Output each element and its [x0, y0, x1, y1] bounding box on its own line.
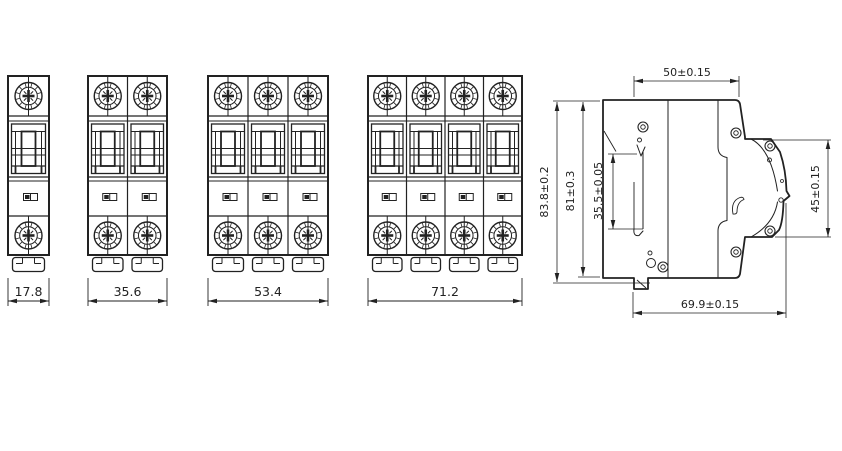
pole	[92, 77, 125, 272]
dim-label-height-body: 81±0.3	[564, 171, 577, 212]
status-indicator	[263, 194, 277, 201]
din-clip	[93, 258, 124, 272]
toggle-switch	[487, 124, 519, 174]
pole	[372, 77, 404, 272]
width-dimension: 17.8	[8, 278, 49, 306]
pole	[292, 77, 325, 272]
toggle-switch	[292, 124, 325, 174]
toggle-switch	[212, 124, 245, 174]
pole	[212, 77, 245, 272]
width-dimension-label: 53.4	[254, 284, 282, 299]
front-view-3-pole: 53.4	[208, 76, 328, 306]
toggle-switch	[92, 124, 125, 174]
din-clip	[450, 258, 480, 272]
din-clip	[13, 258, 45, 272]
width-dimension: 35.6	[88, 278, 167, 306]
status-indicator	[223, 194, 237, 201]
width-dimension-label: 71.2	[431, 284, 459, 299]
status-indicator	[382, 194, 396, 201]
din-clip	[293, 258, 324, 272]
dim-label-height-overall: 83.8±0.2	[538, 166, 551, 217]
front-view-2-pole: 35.6	[88, 76, 167, 306]
width-dimension-label: 35.6	[114, 284, 142, 299]
toggle-switch	[410, 124, 442, 174]
din-clip	[132, 258, 163, 272]
screw-icon	[638, 122, 648, 132]
width-dimension: 71.2	[368, 278, 522, 306]
screw-icon	[731, 247, 741, 257]
technical-drawing: 17.835.653.471.250±0.1583.8±0.281±0.335.…	[0, 0, 842, 451]
dimension-clip-height: 45±0.15	[763, 140, 831, 237]
dimension-depth-top: 50±0.15	[634, 66, 739, 97]
side-view: 50±0.1583.8±0.281±0.335.5±0.0545±0.1569.…	[538, 66, 831, 318]
dim-label-window-height: 35.5±0.05	[592, 162, 605, 220]
screw-icon	[731, 128, 741, 138]
pole	[449, 77, 481, 272]
toggle-switch	[12, 124, 46, 174]
dim-label-clip-height: 45±0.15	[809, 165, 822, 213]
toggle-switch	[449, 124, 481, 174]
status-indicator	[24, 194, 38, 201]
front-view-1-pole: 17.8	[8, 76, 49, 306]
status-indicator	[421, 194, 435, 201]
toggle-switch	[372, 124, 404, 174]
din-clip	[213, 258, 244, 272]
din-clip	[411, 258, 441, 272]
dimension-window-height: 35.5±0.05	[592, 154, 643, 229]
status-indicator	[103, 194, 117, 201]
din-clip	[373, 258, 403, 272]
status-indicator	[142, 194, 156, 201]
screw-icon	[765, 141, 775, 151]
pole	[252, 77, 285, 272]
pole	[131, 77, 164, 272]
screw-icon	[765, 226, 775, 236]
width-dimension: 53.4	[208, 278, 328, 306]
status-indicator	[303, 194, 317, 201]
pole	[487, 77, 519, 272]
width-dimension-label: 17.8	[15, 284, 43, 299]
mcb-dimension-drawing: 17.835.653.471.250±0.1583.8±0.281±0.335.…	[0, 0, 842, 451]
toggle-switch	[131, 124, 164, 174]
pole	[410, 77, 442, 272]
status-indicator	[498, 194, 512, 201]
din-clip	[253, 258, 284, 272]
screw-icon	[658, 262, 668, 272]
toggle-window	[604, 131, 645, 236]
dim-label-depth-top: 50±0.15	[663, 66, 711, 79]
pole	[12, 77, 46, 272]
dim-label-depth-overall: 69.9±0.15	[681, 298, 739, 311]
toggle-switch	[252, 124, 285, 174]
dimension-depth-overall: 69.9±0.15	[633, 203, 786, 318]
front-view-4-pole: 71.2	[368, 76, 522, 306]
status-indicator	[459, 194, 473, 201]
din-clip	[488, 258, 518, 272]
